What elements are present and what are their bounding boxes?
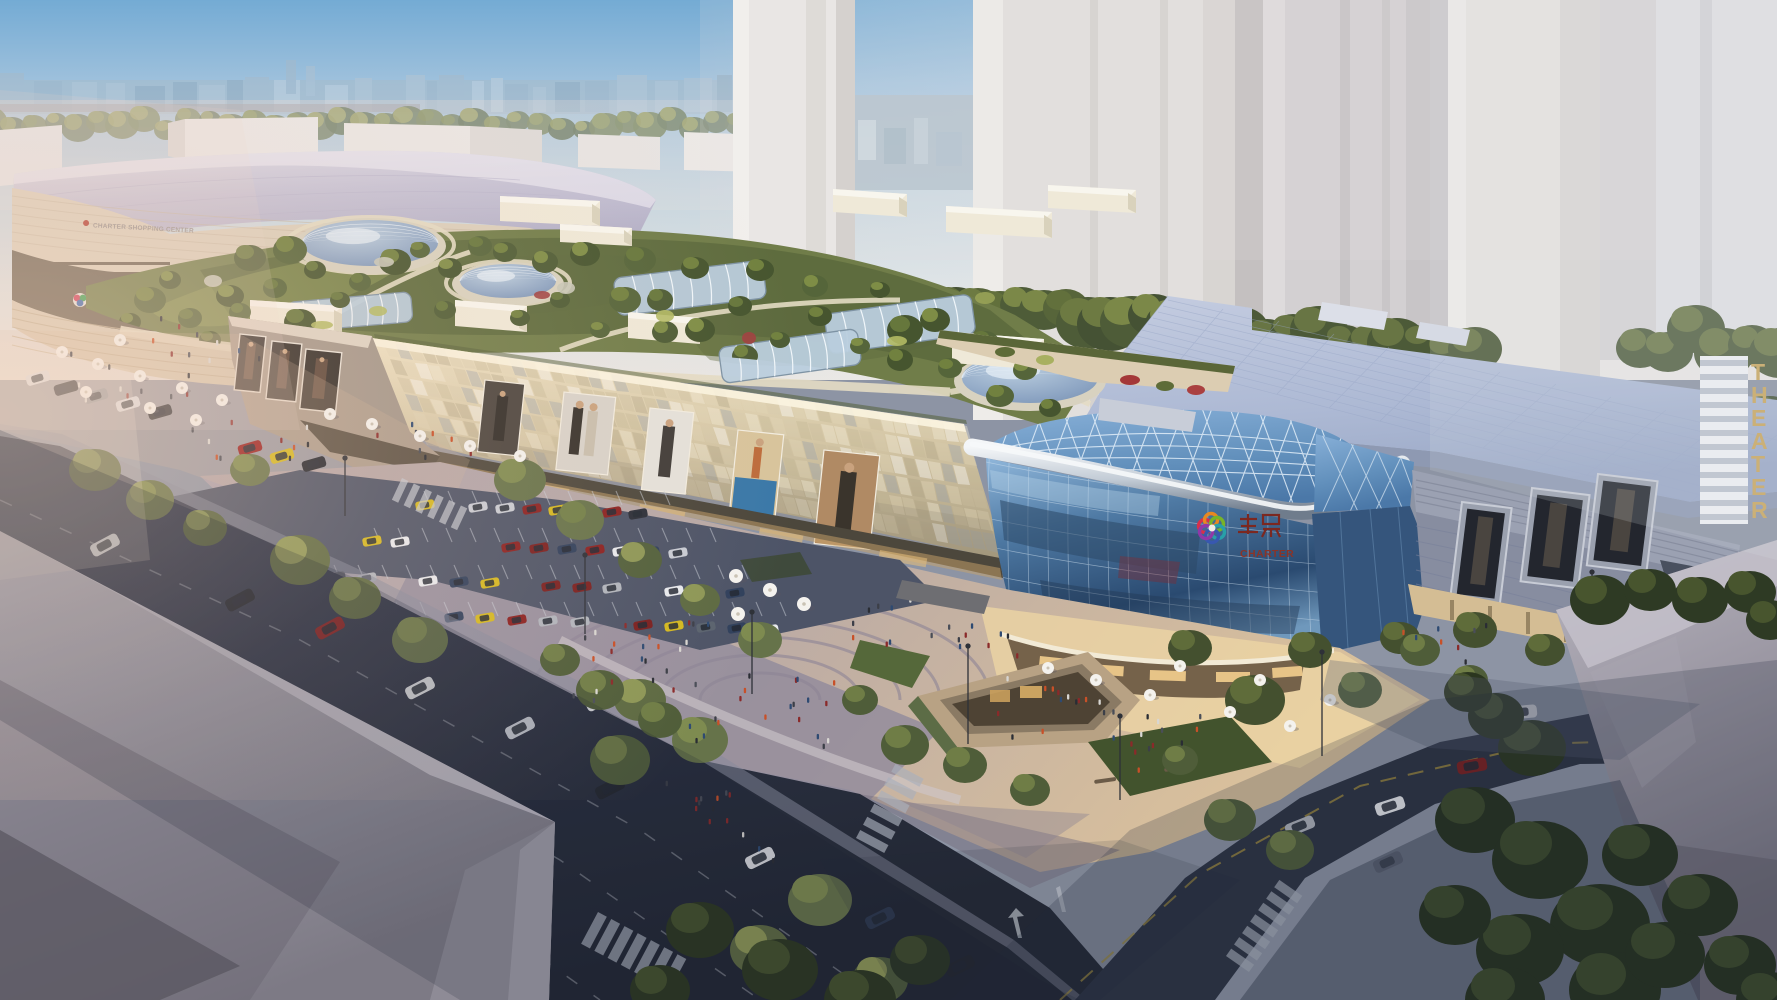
svg-text:CHARTER: CHARTER [1240, 548, 1294, 560]
